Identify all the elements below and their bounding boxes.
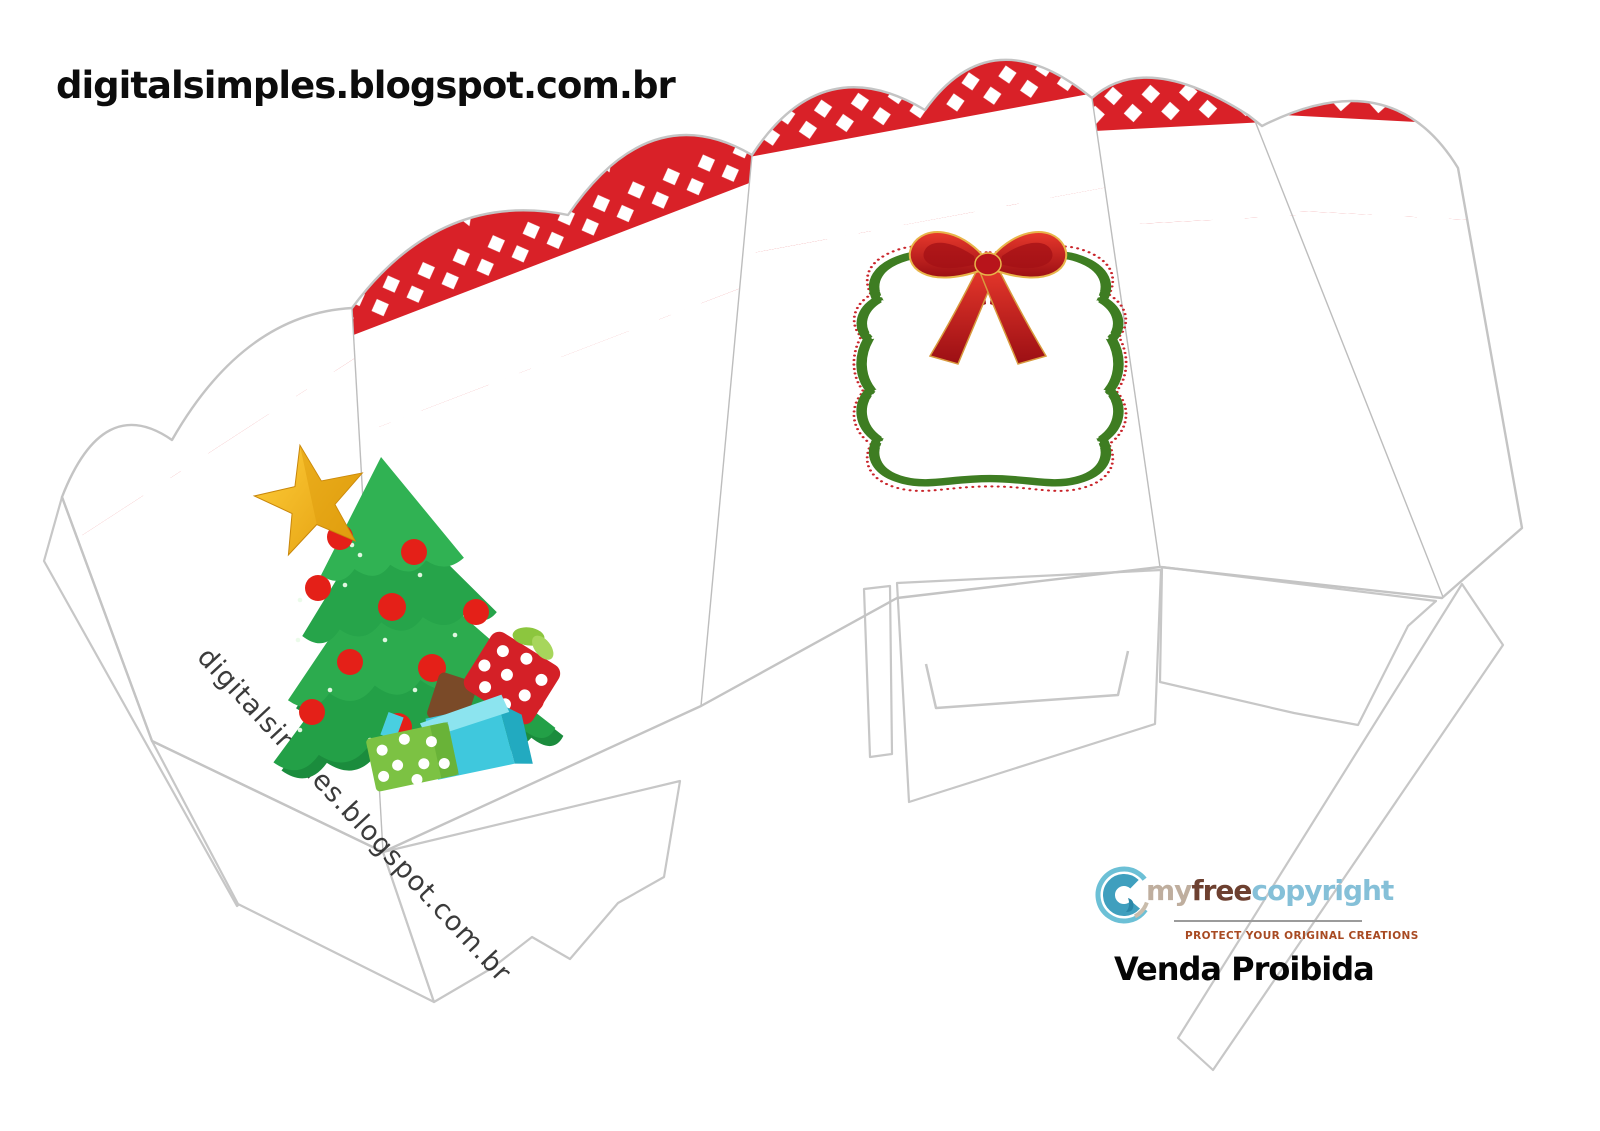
logo-tagline: PROTECT YOUR ORIGINAL CREATIONS [1185,930,1419,942]
sale-forbidden-notice: Venda Proibida [1114,950,1374,988]
logo-word-copyright: copyright [1251,874,1393,907]
logo-word-free: free [1191,874,1251,907]
logo-divider [1174,920,1362,922]
logo-word-my: my [1146,874,1191,907]
printable-sheet: digitalsimples.blogspot.com.br [0,0,1600,1131]
logo-wordmark: myfreecopyright [1146,874,1393,907]
flap-tuck [897,570,1161,802]
